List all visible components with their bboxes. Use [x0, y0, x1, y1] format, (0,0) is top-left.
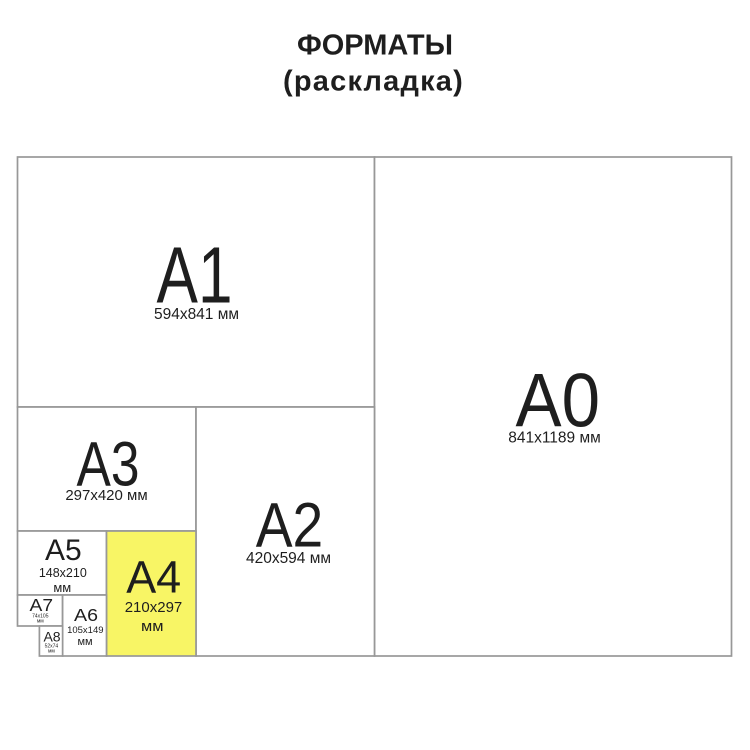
svg-text:мм: мм — [77, 636, 92, 648]
svg-text:594x841 мм: 594x841 мм — [154, 306, 239, 323]
svg-text:мм: мм — [141, 618, 164, 635]
svg-text:(раскладка): (раскладка) — [283, 66, 464, 98]
svg-text:297x420 мм: 297x420 мм — [65, 487, 147, 504]
svg-text:210x297: 210x297 — [125, 599, 183, 616]
svg-text:мм: мм — [37, 619, 44, 625]
svg-text:A4: A4 — [126, 552, 181, 603]
svg-text:420x594 мм: 420x594 мм — [246, 550, 331, 567]
svg-text:мм: мм — [48, 649, 55, 655]
svg-text:A6: A6 — [74, 605, 98, 625]
svg-text:мм: мм — [53, 580, 71, 595]
svg-text:105x149: 105x149 — [67, 625, 103, 636]
svg-text:148x210: 148x210 — [39, 566, 87, 580]
svg-text:A7: A7 — [30, 595, 54, 615]
svg-text:A5: A5 — [45, 534, 82, 567]
svg-text:A8: A8 — [43, 628, 60, 644]
svg-text:ФОРМАТЫ: ФОРМАТЫ — [297, 30, 453, 62]
svg-text:841x1189 мм: 841x1189 мм — [508, 430, 601, 447]
